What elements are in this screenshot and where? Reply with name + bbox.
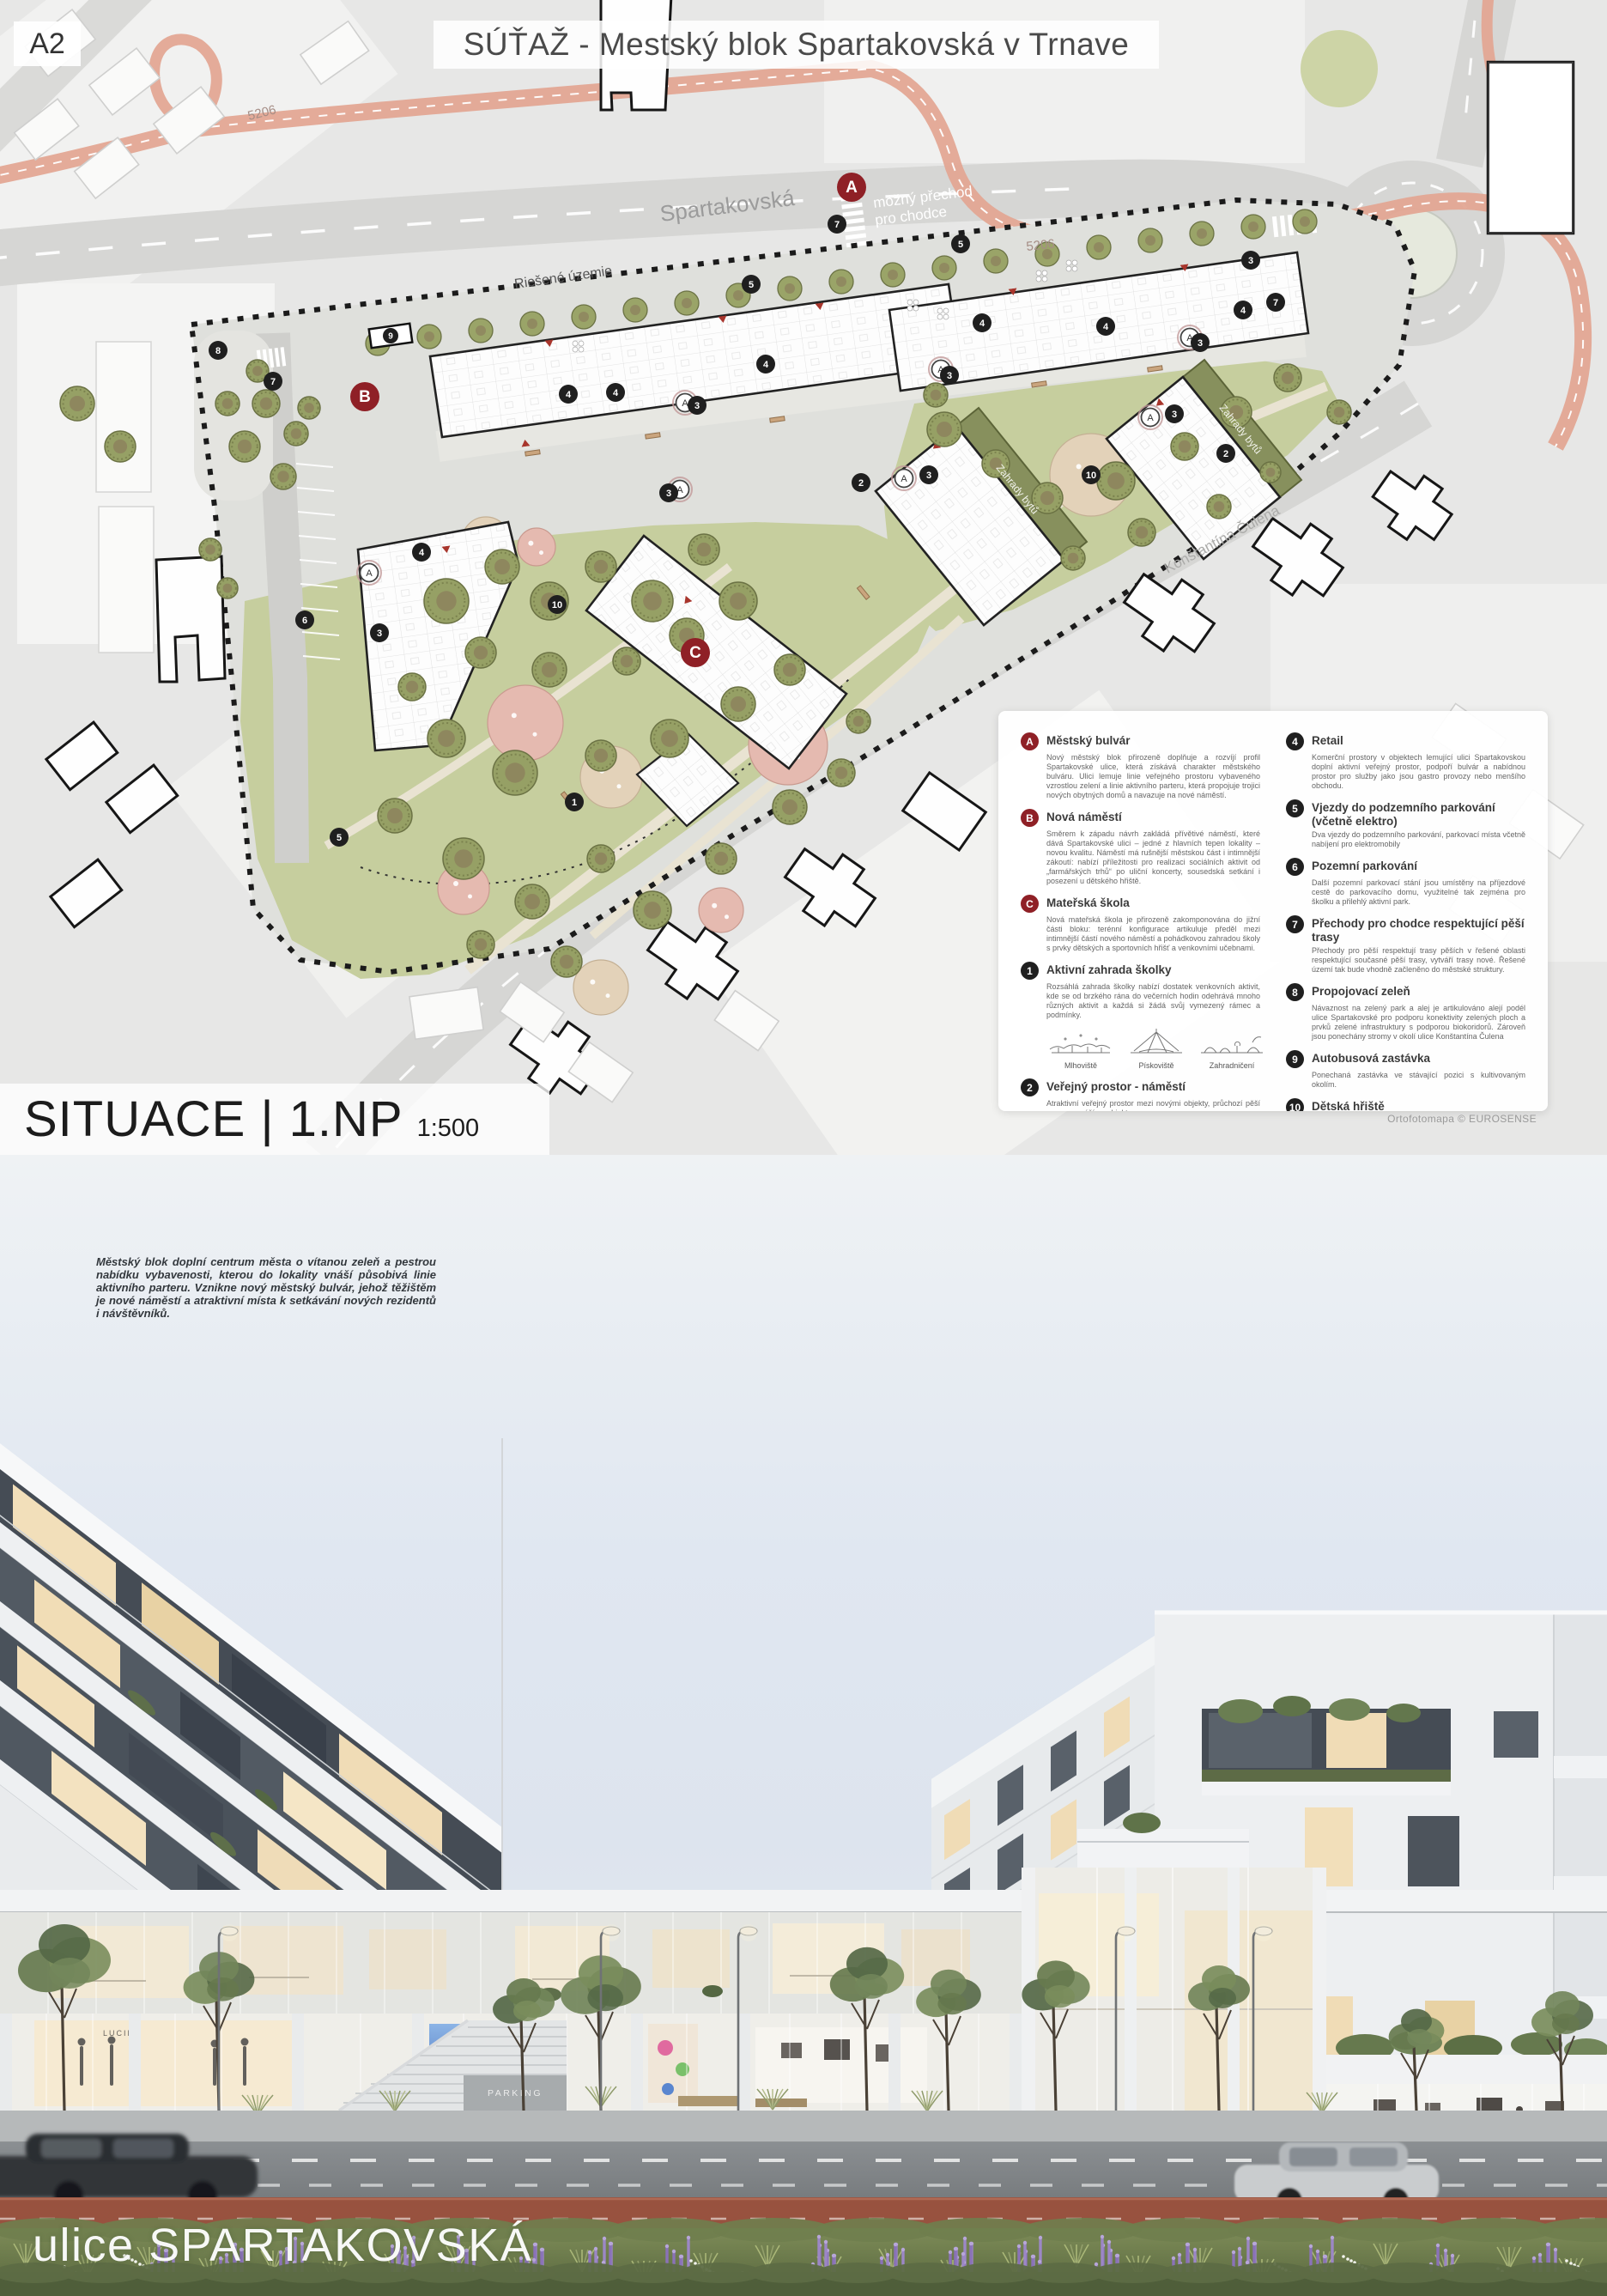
plan-marker: 4 [973, 313, 991, 332]
svg-text:5: 5 [749, 280, 754, 290]
legend-badge-7: 7 [1286, 915, 1304, 933]
plan-marker: 2 [852, 473, 870, 492]
svg-text:4: 4 [1103, 322, 1109, 332]
legend-col-right: 4RetailKomerční prostory v objektech lem… [1286, 732, 1525, 1099]
plan-title-band: SITUACE | 1.NP 1:500 [0, 1084, 549, 1156]
svg-text:2: 2 [858, 478, 864, 489]
plan-marker: 3 [659, 483, 678, 502]
plan-scale: 1:500 [417, 1115, 480, 1143]
legend-badge-1: 1 [1021, 962, 1039, 980]
road-number-right: 5206 [1026, 237, 1056, 254]
plan-legend: AMěstský bulvárNový městský blok přiroze… [998, 711, 1548, 1111]
svg-text:3: 3 [377, 629, 382, 639]
plan-marker: 4 [1096, 317, 1115, 336]
svg-text:7: 7 [1273, 298, 1278, 308]
plan-marker: 7 [1266, 293, 1285, 312]
svg-text:4: 4 [1240, 306, 1246, 316]
svg-text:A: A [901, 474, 907, 484]
svg-text:A: A [846, 179, 858, 197]
svg-text:3: 3 [694, 401, 700, 411]
concept-paragraph: Městský blok doplní centrum města o víta… [96, 1255, 436, 1320]
plan-marker: 4 [559, 385, 578, 404]
svg-text:3: 3 [1248, 256, 1253, 266]
svg-text:5: 5 [337, 833, 342, 843]
street-name-caption: ulice SPARTAKOVSKÁ [33, 2219, 532, 2272]
svg-text:B: B [359, 388, 371, 406]
plan-marker: 6 [295, 610, 314, 629]
svg-text:4: 4 [979, 319, 985, 329]
svg-text:6: 6 [302, 616, 307, 626]
plan-marker: 8 [209, 341, 227, 360]
sandbox-sketch-icon [1122, 1027, 1191, 1056]
plan-marker: 3 [370, 623, 389, 642]
svg-text:7: 7 [270, 377, 276, 387]
board-title: SÚŤAŽ - Mestský blok Spartakovská v Trna… [434, 21, 1159, 69]
plan-marker: 5 [742, 275, 761, 294]
plan-marker: 7 [264, 372, 282, 391]
plan-marker: 3 [688, 396, 706, 415]
legend-badge-5: 5 [1286, 799, 1304, 817]
plan-marker: 5 [330, 828, 349, 847]
legend-badge-C: C [1021, 895, 1039, 913]
parking-sign: PARKING [488, 2088, 543, 2099]
legend-col-left: AMěstský bulvárNový městský blok přiroze… [1021, 732, 1260, 1099]
svg-text:5: 5 [958, 240, 963, 250]
plan-marker: 3 [1241, 251, 1260, 270]
legend-badge-A: A [1021, 732, 1039, 750]
svg-text:A: A [366, 568, 373, 579]
plan-marker: 3 [1191, 333, 1210, 352]
plan-marker: 1 [565, 793, 584, 811]
orthophoto-credit: Ortofotomapa © EUROSENSE [1270, 1113, 1537, 1125]
north-box [1488, 62, 1574, 234]
legend-badge-8: 8 [1286, 983, 1304, 1001]
plan-title: SITUACE | 1.NP [24, 1090, 403, 1148]
svg-text:A: A [682, 398, 688, 409]
plan-marker: C [681, 638, 710, 667]
plan-marker: A [837, 173, 866, 202]
sheet-label: A2 [14, 21, 81, 66]
svg-text:4: 4 [763, 360, 769, 370]
plan-marker: 7 [828, 215, 846, 234]
plan-marker: 2 [1216, 444, 1235, 463]
plan-marker: 3 [919, 465, 938, 484]
svg-text:4: 4 [566, 390, 572, 400]
plan-marker: 4 [756, 355, 775, 374]
svg-text:10: 10 [1086, 471, 1096, 481]
plan-marker: A [357, 561, 381, 585]
legend-badge-9: 9 [1286, 1050, 1304, 1068]
svg-text:3: 3 [666, 489, 671, 499]
legend-badge-B: B [1021, 809, 1039, 827]
svg-text:4: 4 [419, 548, 425, 558]
legend-badge-4: 4 [1286, 732, 1304, 750]
svg-text:C: C [689, 644, 701, 662]
plan-marker: 4 [1234, 301, 1252, 319]
svg-text:3: 3 [1172, 410, 1177, 420]
svg-text:10: 10 [552, 600, 562, 610]
plan-marker: A [892, 466, 916, 490]
plan-marker: 3 [940, 366, 959, 385]
svg-text:4: 4 [613, 388, 619, 398]
legend-badge-10: 10 [1286, 1098, 1304, 1111]
garden-sketches: Mlhoviště Pískoviště Zahradničení [1046, 1027, 1260, 1070]
competition-board: ABCAAAAAAA987776555444444433333333221101… [0, 0, 1607, 2296]
plan-marker: A [1138, 405, 1162, 429]
plan-marker: B [350, 382, 379, 411]
plan-marker: 10 [548, 595, 567, 614]
plan-marker: 4 [412, 543, 431, 562]
svg-text:3: 3 [1198, 338, 1203, 349]
plan-marker: 5 [951, 234, 970, 253]
gardening-sketch-icon [1198, 1027, 1266, 1056]
street-rendering: LUCIEN PARKING [0, 1155, 1607, 2296]
svg-text:1: 1 [572, 798, 577, 808]
svg-text:8: 8 [215, 346, 221, 356]
svg-text:2: 2 [1223, 449, 1228, 459]
svg-text:3: 3 [926, 471, 931, 481]
svg-text:7: 7 [834, 220, 840, 230]
plan-marker: 4 [606, 383, 625, 402]
svg-text:A: A [1147, 413, 1154, 423]
legend-badge-6: 6 [1286, 858, 1304, 876]
legend-badge-2: 2 [1021, 1078, 1039, 1096]
plan-marker: 3 [1165, 404, 1184, 423]
mist-sketch-icon [1046, 1027, 1115, 1056]
plan-marker: 10 [1082, 465, 1101, 484]
svg-text:9: 9 [388, 332, 393, 342]
svg-text:3: 3 [947, 371, 952, 381]
